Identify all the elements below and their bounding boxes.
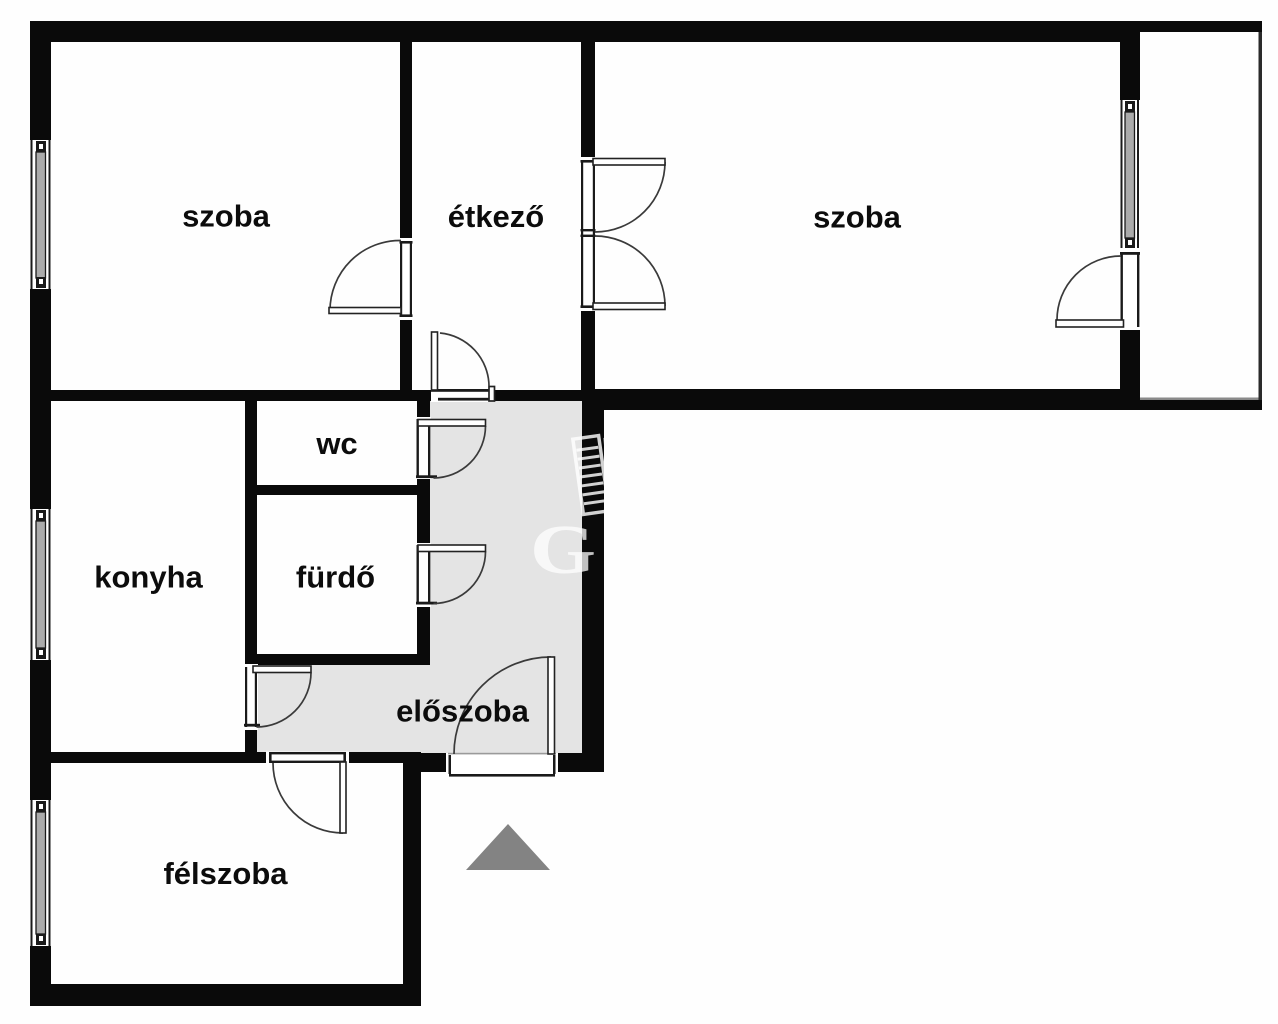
- svg-text:szoba: szoba: [182, 199, 271, 234]
- svg-text:étkező: étkező: [448, 199, 544, 234]
- svg-text:félszoba: félszoba: [163, 856, 288, 891]
- svg-text:wc: wc: [315, 426, 357, 461]
- svg-text:előszoba: előszoba: [396, 694, 529, 729]
- svg-text:szoba: szoba: [813, 200, 902, 235]
- svg-text:konyha: konyha: [94, 560, 203, 595]
- svg-text:fürdő: fürdő: [296, 560, 375, 595]
- svg-text:G: G: [530, 512, 596, 589]
